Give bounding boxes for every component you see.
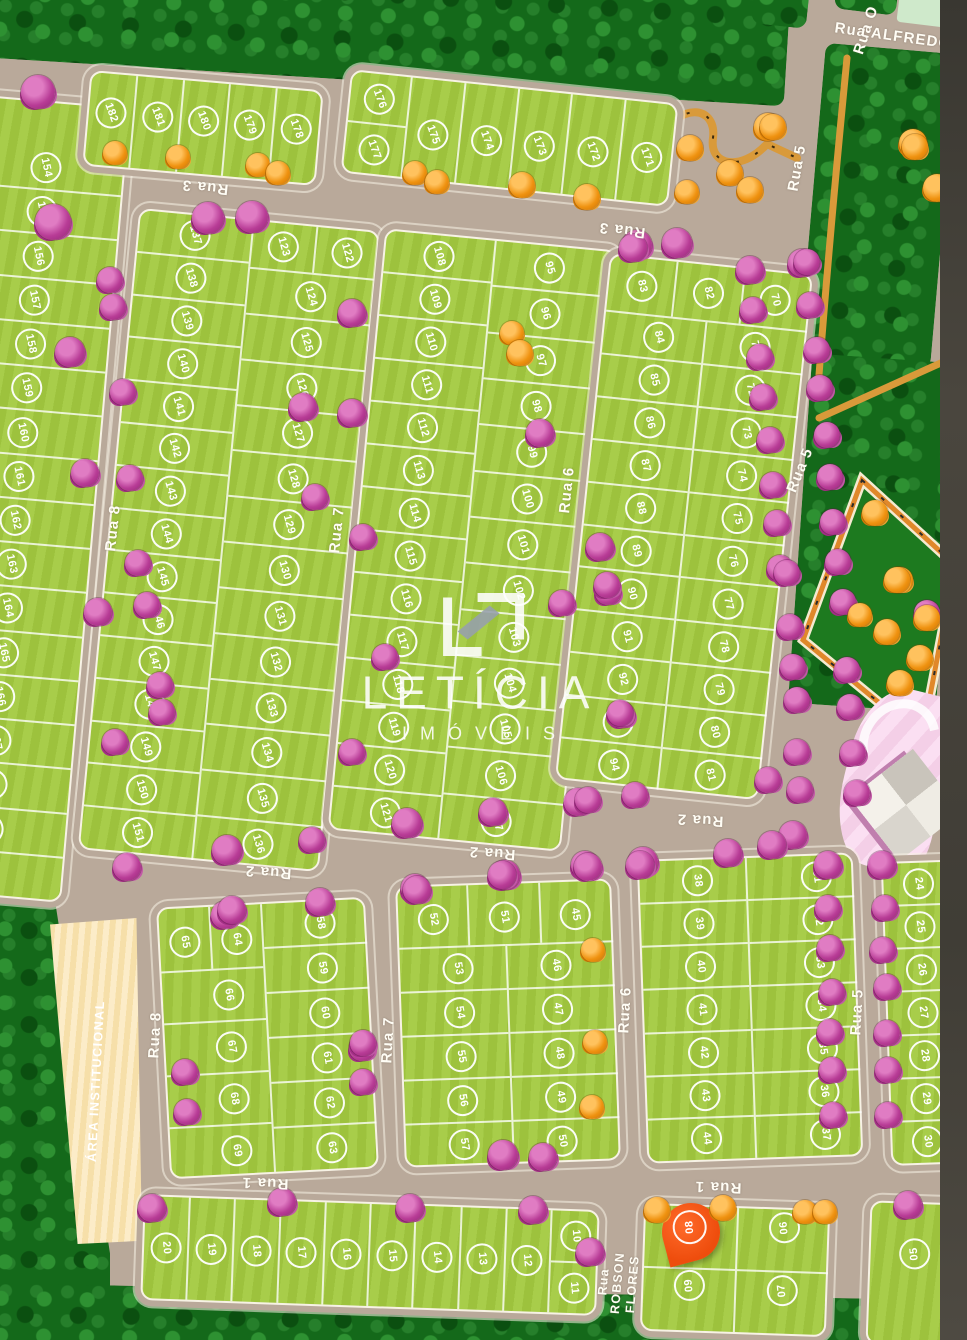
lot-number-129: 129 <box>270 506 308 544</box>
lot-number-111: 111 <box>408 365 446 403</box>
tree-orange-icon <box>166 145 190 169</box>
tree-pink-icon <box>817 464 843 490</box>
tree-pink-icon <box>575 787 601 813</box>
lot-122[interactable]: 122 <box>312 227 380 279</box>
lot-number-41: 41 <box>685 992 720 1027</box>
lot-number-167: 167 <box>0 722 14 759</box>
highlighted-lot-number: 08 <box>671 1209 708 1246</box>
lot-number-42: 42 <box>686 1035 721 1070</box>
lot-43[interactable]: 43 <box>646 1072 753 1119</box>
tree-pink-icon <box>787 777 813 803</box>
tree-pink-icon <box>350 1069 376 1095</box>
lot-number-132: 132 <box>256 643 294 681</box>
lot-number-67: 67 <box>214 1029 250 1065</box>
lot-number-171: 171 <box>627 138 667 178</box>
watermark-logo: LETÍCIA IMÓVEIS <box>362 592 599 745</box>
tree-pink-icon <box>519 1196 547 1224</box>
tree-pink-icon <box>780 654 806 680</box>
tree-pink-icon <box>306 888 334 916</box>
tree-pink-icon <box>35 204 71 240</box>
lot-83[interactable]: 83 <box>606 255 677 317</box>
lot-number-07: 07 <box>765 1274 799 1308</box>
tree-pink-icon <box>302 484 328 510</box>
lot-121[interactable]: 121 <box>330 785 442 838</box>
tree-pink-icon <box>147 672 173 698</box>
tree-pink-icon <box>218 896 246 924</box>
lot-number-27: 27 <box>906 995 941 1030</box>
lot-number-106: 106 <box>481 756 519 794</box>
lot-number-11: 11 <box>557 1271 591 1305</box>
lot-55[interactable]: 55 <box>402 1032 509 1080</box>
tree-orange-icon <box>884 567 910 593</box>
tree-pink-icon <box>488 1140 518 1170</box>
lot-number-84: 84 <box>640 319 678 357</box>
tree-orange-icon <box>760 114 786 140</box>
lot-65[interactable]: 65 <box>158 907 211 972</box>
lot-number-75: 75 <box>718 500 756 538</box>
tree-orange-icon <box>848 603 872 627</box>
lot-number-180: 180 <box>184 101 224 141</box>
lot-number-169: 169 <box>0 810 7 847</box>
lot-69[interactable]: 69 <box>170 1122 275 1179</box>
tree-pink-icon <box>236 201 268 233</box>
tree-pink-icon <box>740 297 766 323</box>
lot-number-181: 181 <box>138 97 178 137</box>
lot-number-80: 80 <box>696 713 734 751</box>
street-label-rua-2: Rua 2 <box>676 810 724 829</box>
lot-19[interactable]: 19 <box>186 1198 235 1302</box>
tree-pink-icon <box>797 292 823 318</box>
lot-number-66: 66 <box>211 977 247 1013</box>
tree-pink-icon <box>113 853 141 881</box>
lot-number-113: 113 <box>399 451 437 489</box>
tree-pink-icon <box>834 657 860 683</box>
street-label-rua-1: Rua 1 <box>241 1174 288 1193</box>
lot-number-144: 144 <box>147 515 185 553</box>
lot-strip: 4647484950 <box>505 940 621 1164</box>
lot-number-20: 20 <box>149 1231 183 1265</box>
lot-number-13: 13 <box>465 1242 499 1276</box>
lot-41[interactable]: 41 <box>643 985 750 1032</box>
lot-number-14: 14 <box>420 1241 454 1275</box>
lot-number-45: 45 <box>558 897 594 933</box>
lot-176[interactable]: 176 <box>348 71 411 126</box>
site-plan-map: ÁREA INSTITUCIONAL 154155156157158159160… <box>0 0 967 1340</box>
lot-47[interactable]: 47 <box>509 984 616 1032</box>
lot-number-112: 112 <box>403 408 441 446</box>
lot-number-133: 133 <box>252 688 290 726</box>
lot-12[interactable]: 12 <box>502 1209 551 1313</box>
tree-orange-icon <box>507 340 533 366</box>
lot-37[interactable]: 37 <box>756 1111 863 1158</box>
lot-11[interactable]: 11 <box>549 1260 598 1314</box>
street-label-rua-5: Rua 5 <box>847 988 866 1036</box>
block-g: 52514553545556574647484950 <box>395 878 621 1167</box>
lot-63[interactable]: 63 <box>274 1121 379 1171</box>
tree-orange-icon <box>581 938 605 962</box>
tree-pink-icon <box>488 861 516 889</box>
tree-pink-icon <box>820 1102 846 1128</box>
lot-number-25: 25 <box>903 909 938 944</box>
tree-pink-icon <box>784 739 810 765</box>
lot-number-65: 65 <box>167 924 203 960</box>
lot-number-173: 173 <box>520 126 560 166</box>
tree-orange-icon <box>710 1195 736 1221</box>
tree-orange-icon <box>874 619 900 645</box>
lot-number-158: 158 <box>12 326 49 363</box>
lot-number-63: 63 <box>313 1129 349 1165</box>
lot-39[interactable]: 39 <box>640 899 747 946</box>
tree-pink-icon <box>299 827 325 853</box>
lot-number-168: 168 <box>0 766 10 803</box>
lot-number-88: 88 <box>622 490 660 528</box>
tree-orange-icon <box>425 170 449 194</box>
lot-13[interactable]: 13 <box>457 1207 506 1311</box>
tree-pink-icon <box>21 75 55 109</box>
tree-orange-icon <box>580 1095 604 1119</box>
lot-number-52: 52 <box>415 902 451 938</box>
lot-number-182: 182 <box>91 93 131 133</box>
tree-pink-icon <box>662 228 692 258</box>
lot-number-86: 86 <box>631 404 669 442</box>
tree-pink-icon <box>71 459 99 487</box>
lot-66[interactable]: 66 <box>161 968 265 1023</box>
lot-number-170: 170 <box>0 854 3 891</box>
tree-orange-icon <box>644 1197 670 1223</box>
lot-strip: 5354555657 <box>399 944 513 1168</box>
tree-orange-icon <box>583 1030 607 1054</box>
lot-number-40: 40 <box>683 949 718 984</box>
lot-number-108: 108 <box>420 237 458 275</box>
lot-number-130: 130 <box>265 551 303 589</box>
tree-pink-icon <box>874 974 900 1000</box>
tree-pink-icon <box>403 876 431 904</box>
tree-pink-icon <box>825 549 851 575</box>
lot-number-123: 123 <box>264 228 302 266</box>
tree-pink-icon <box>268 1188 296 1216</box>
logo-name: LETÍCIA <box>362 666 599 720</box>
lot-number-96: 96 <box>526 295 564 333</box>
tree-orange-icon <box>813 1200 837 1224</box>
lot-number-28: 28 <box>907 1038 942 1073</box>
lot-number-149: 149 <box>127 728 165 766</box>
tree-pink-icon <box>807 375 833 401</box>
street-label-rua-3: Rua 3 <box>598 219 647 242</box>
tree-pink-icon <box>750 384 776 410</box>
lot-number-85: 85 <box>635 362 673 400</box>
lot-number-54: 54 <box>442 995 478 1031</box>
lot-number-179: 179 <box>230 105 270 145</box>
tree-pink-icon <box>764 510 790 536</box>
tree-pink-icon <box>55 337 85 367</box>
lot-number-74: 74 <box>723 457 761 495</box>
lot-number-160: 160 <box>4 414 41 451</box>
tree-pink-icon <box>125 550 151 576</box>
lot-number-39: 39 <box>682 906 717 941</box>
lot-09[interactable]: 09 <box>642 1266 735 1332</box>
lot-45[interactable]: 45 <box>538 880 611 942</box>
tree-pink-icon <box>134 592 160 618</box>
lot-56[interactable]: 56 <box>404 1076 511 1124</box>
lot-number-161: 161 <box>1 458 38 495</box>
lot-number-172: 172 <box>573 132 613 172</box>
tree-pink-icon <box>586 533 614 561</box>
lot-number-44: 44 <box>689 1121 724 1156</box>
tree-orange-icon <box>403 161 427 185</box>
block-f: 656466676869585960616263 <box>156 897 379 1180</box>
tree-pink-icon <box>819 979 845 1005</box>
lot-strip: 0607 <box>733 1208 830 1335</box>
lot-number-143: 143 <box>151 472 189 510</box>
lot-82[interactable]: 82 <box>671 262 744 324</box>
tree-pink-icon <box>84 598 112 626</box>
lot-18[interactable]: 18 <box>231 1199 280 1303</box>
lot-number-48: 48 <box>541 1035 577 1071</box>
lot-number-166: 166 <box>0 678 18 715</box>
tree-pink-icon <box>607 700 633 726</box>
lot-number-131: 131 <box>261 597 299 635</box>
tree-pink-icon <box>529 1143 557 1171</box>
lot-number-151: 151 <box>118 813 156 851</box>
lot-number-24: 24 <box>901 866 936 901</box>
lot-number-150: 150 <box>123 770 161 808</box>
lot-number-95: 95 <box>530 249 568 287</box>
tree-pink-icon <box>102 729 128 755</box>
tree-pink-icon <box>350 524 376 550</box>
lot-177[interactable]: 177 <box>343 120 406 177</box>
tree-pink-icon <box>172 1059 198 1085</box>
lot-number-120: 120 <box>370 750 408 788</box>
lot-number-16: 16 <box>330 1237 364 1271</box>
tree-orange-icon <box>574 184 600 210</box>
lot-number-82: 82 <box>690 274 728 312</box>
tree-pink-icon <box>289 393 317 421</box>
tree-pink-icon <box>760 472 786 498</box>
lot-number-175: 175 <box>413 115 453 155</box>
logo-icon <box>434 592 526 658</box>
lot-number-140: 140 <box>164 344 202 382</box>
lot-number-162: 162 <box>0 502 33 539</box>
tree-pink-icon <box>874 1020 900 1046</box>
lot-number-77: 77 <box>709 585 747 623</box>
lot-number-101: 101 <box>503 526 541 564</box>
lot-number-26: 26 <box>904 952 939 987</box>
lot-number-94: 94 <box>595 746 633 784</box>
street-label-rua-robson-flores: Rua ROBSON FLORES <box>593 1246 642 1319</box>
lot-number-109: 109 <box>416 280 454 318</box>
tree-orange-icon <box>907 645 933 671</box>
tree-pink-icon <box>844 780 870 806</box>
lot-number-79: 79 <box>700 670 738 708</box>
tree-orange-icon <box>675 180 699 204</box>
lot-number-141: 141 <box>159 387 197 425</box>
lot-number-110: 110 <box>412 322 450 360</box>
tree-pink-icon <box>97 267 123 293</box>
lot-number-135: 135 <box>243 779 281 817</box>
lot-16[interactable]: 16 <box>321 1202 370 1306</box>
lot-number-29: 29 <box>909 1081 944 1116</box>
lot-59[interactable]: 59 <box>264 942 369 992</box>
lot-number-91: 91 <box>608 618 646 656</box>
lot-number-43: 43 <box>688 1078 723 1113</box>
lot-number-156: 156 <box>20 238 57 275</box>
tree-pink-icon <box>894 1191 922 1219</box>
lot-44[interactable]: 44 <box>648 1115 755 1162</box>
lot-number-56: 56 <box>445 1083 481 1119</box>
lot-17[interactable]: 17 <box>276 1201 325 1305</box>
tree-pink-icon <box>814 851 842 879</box>
lot-49[interactable]: 49 <box>512 1072 619 1120</box>
lot-number-53: 53 <box>440 951 476 987</box>
tree-orange-icon <box>887 670 913 696</box>
lot-strip: 176177 <box>343 71 411 177</box>
tree-orange-icon <box>266 161 290 185</box>
street-label-rua-2: Rua 2 <box>468 843 516 863</box>
tree-orange-icon <box>103 141 127 165</box>
lot-number-89: 89 <box>617 532 655 570</box>
tree-pink-icon <box>192 202 224 234</box>
lot-number-12: 12 <box>510 1244 544 1278</box>
lot-07[interactable]: 07 <box>735 1269 828 1335</box>
tree-pink-icon <box>755 767 781 793</box>
tree-pink-icon <box>837 694 863 720</box>
lot-number-139: 139 <box>168 302 206 340</box>
tree-pink-icon <box>626 851 654 879</box>
tree-pink-icon <box>804 337 830 363</box>
tree-pink-icon <box>817 1019 843 1045</box>
tree-orange-icon <box>914 605 940 631</box>
lot-14[interactable]: 14 <box>412 1206 461 1310</box>
street-label-rua-6: Rua 6 <box>615 986 634 1034</box>
lot-number-125: 125 <box>287 323 325 361</box>
tree-pink-icon <box>840 740 866 766</box>
tree-pink-icon <box>757 427 783 453</box>
tree-orange-icon <box>677 135 703 161</box>
lot-number-124: 124 <box>292 277 330 315</box>
lot-number-69: 69 <box>219 1133 255 1169</box>
lot-number-165: 165 <box>0 634 22 671</box>
lot-51[interactable]: 51 <box>466 883 539 945</box>
tree-pink-icon <box>758 831 786 859</box>
lot-60[interactable]: 60 <box>267 987 372 1037</box>
lot-number-61: 61 <box>309 1039 345 1075</box>
lot-number-83: 83 <box>623 267 661 305</box>
lot-number-177: 177 <box>354 130 394 170</box>
scan-edge <box>940 0 967 1340</box>
lot-54[interactable]: 54 <box>401 988 508 1036</box>
lot-number-05: 05 <box>898 1237 932 1271</box>
street-label-rua-3: Rua 3 <box>181 176 229 198</box>
lot-81[interactable]: 81 <box>658 747 762 800</box>
lot-number-46: 46 <box>538 947 574 983</box>
lot-40[interactable]: 40 <box>642 942 749 989</box>
lot-number-142: 142 <box>155 430 193 468</box>
lot-number-122: 122 <box>328 234 366 272</box>
lot-number-09: 09 <box>672 1269 706 1303</box>
lot-number-176: 176 <box>360 79 400 119</box>
tree-pink-icon <box>872 895 898 921</box>
tree-pink-icon <box>338 399 366 427</box>
lot-number-164: 164 <box>0 590 26 627</box>
lot-number-15: 15 <box>375 1239 409 1273</box>
lot-number-92: 92 <box>604 660 642 698</box>
tree-pink-icon <box>100 294 126 320</box>
area-institucional-label: ÁREA INSTITUCIONAL <box>85 1000 107 1162</box>
lot-number-178: 178 <box>276 109 316 149</box>
tree-pink-icon <box>396 1194 424 1222</box>
lot-number-51: 51 <box>486 899 522 935</box>
lot-number-47: 47 <box>539 991 575 1027</box>
lot-number-157: 157 <box>16 282 53 319</box>
lot-number-154: 154 <box>28 149 65 186</box>
lot-number-19: 19 <box>194 1233 228 1267</box>
lot-number-134: 134 <box>248 734 286 772</box>
street-label-rua-8: Rua 8 <box>145 1011 164 1059</box>
lot-number-163: 163 <box>0 546 30 583</box>
lot-171[interactable]: 171 <box>614 100 678 205</box>
tree-pink-icon <box>819 1057 845 1083</box>
lot-number-81: 81 <box>691 756 729 794</box>
tree-pink-icon <box>110 379 136 405</box>
tree-pink-icon <box>149 699 175 725</box>
lot-strip: 201918171615141312 <box>142 1196 550 1312</box>
tree-pink-icon <box>392 808 422 838</box>
tree-pink-icon <box>774 560 800 586</box>
tree-pink-icon <box>714 839 742 867</box>
tree-pink-icon <box>622 782 648 808</box>
lot-number-17: 17 <box>285 1236 319 1270</box>
lot-number-38: 38 <box>680 863 715 898</box>
lot-36[interactable]: 36 <box>754 1068 861 1115</box>
tree-pink-icon <box>814 422 840 448</box>
tree-pink-icon <box>870 937 896 963</box>
lot-number-60: 60 <box>306 995 342 1031</box>
tree-pink-icon <box>574 853 602 881</box>
tree-pink-icon <box>784 687 810 713</box>
lot-number-55: 55 <box>443 1039 479 1075</box>
lot-number-57: 57 <box>447 1127 483 1163</box>
lot-number-174: 174 <box>466 121 506 161</box>
street-label-rua-2: Rua 2 <box>244 862 292 882</box>
logo-subtitle: IMÓVEIS <box>392 724 568 745</box>
tree-pink-icon <box>820 509 846 535</box>
tree-pink-icon <box>117 465 143 491</box>
lot-number-114: 114 <box>395 494 433 532</box>
tree-pink-icon <box>350 1030 376 1056</box>
tree-pink-icon <box>875 1102 901 1128</box>
tree-pink-icon <box>736 256 764 284</box>
tree-pink-icon <box>777 614 803 640</box>
tree-pink-icon <box>817 935 843 961</box>
lot-number-100: 100 <box>508 480 546 518</box>
lot-number-136: 136 <box>239 825 277 863</box>
tree-orange-icon <box>737 177 763 203</box>
tree-orange-icon <box>509 172 535 198</box>
tree-pink-icon <box>212 835 242 865</box>
lot-number-78: 78 <box>705 628 743 666</box>
lot-number-115: 115 <box>391 536 429 574</box>
tree-pink-icon <box>794 249 820 275</box>
tree-orange-icon <box>902 134 928 160</box>
lot-number-87: 87 <box>626 447 664 485</box>
lot-53[interactable]: 53 <box>399 946 506 992</box>
lot-number-159: 159 <box>8 370 45 407</box>
tree-pink-icon <box>875 1057 901 1083</box>
lot-number-62: 62 <box>311 1084 347 1120</box>
tree-orange-icon <box>862 500 888 526</box>
tree-pink-icon <box>479 798 507 826</box>
lot-42[interactable]: 42 <box>645 1029 752 1076</box>
